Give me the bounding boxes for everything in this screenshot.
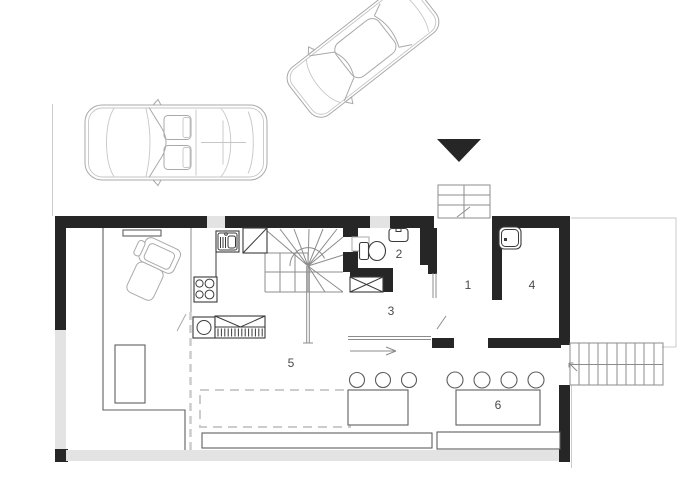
car-windshield bbox=[309, 40, 365, 101]
bar-stool bbox=[350, 373, 365, 388]
bench-right bbox=[437, 432, 560, 449]
car-rear-window bbox=[371, 4, 412, 52]
wall-top-a bbox=[58, 216, 207, 228]
car-mirror-left bbox=[305, 45, 315, 55]
toilet-bowl bbox=[369, 242, 386, 261]
stair-winder-lines bbox=[266, 229, 343, 292]
room4-washbasin bbox=[499, 227, 521, 249]
bench-left bbox=[202, 433, 432, 448]
door-frame-lines bbox=[433, 273, 436, 298]
kitchen-sink bbox=[216, 231, 239, 252]
car-hood-line bbox=[107, 109, 115, 177]
exterior-stairs-treads bbox=[570, 343, 663, 385]
car-seat-left bbox=[164, 116, 191, 140]
exterior-stairs bbox=[569, 343, 663, 385]
car-mirror-bottom bbox=[153, 180, 161, 186]
room-label-2: 2 bbox=[396, 247, 403, 261]
wall-right-upper bbox=[559, 216, 570, 345]
car-windshield-base bbox=[146, 109, 150, 177]
entrance-steps bbox=[438, 185, 490, 218]
wall-corridor-a bbox=[432, 338, 454, 348]
washbasin-outline bbox=[389, 229, 408, 242]
kitchen-corner-cabinet bbox=[243, 228, 267, 253]
toilet bbox=[360, 242, 386, 261]
car-hood-line bbox=[300, 59, 340, 108]
direction-line-double bbox=[348, 337, 431, 340]
car-seat-right-back bbox=[183, 148, 190, 168]
shaft-box bbox=[350, 277, 383, 292]
wall-wc-right bbox=[420, 228, 437, 265]
car-trunk-line bbox=[248, 112, 253, 174]
entrance-marker-triangle bbox=[437, 139, 481, 162]
floor-plan-page: 1 2 3 4 5 6 bbox=[0, 0, 680, 504]
oven-unit bbox=[193, 317, 215, 338]
bar-stool bbox=[447, 372, 463, 388]
wall-wc-pier bbox=[383, 270, 393, 292]
car-deck-cross-lines bbox=[201, 121, 246, 165]
room-label-5: 5 bbox=[288, 356, 295, 370]
toilet-tank bbox=[360, 243, 369, 260]
floor-plan-canvas: 1 2 3 4 5 6 bbox=[0, 0, 680, 504]
window-top-2 bbox=[370, 216, 390, 228]
window-top-1 bbox=[207, 216, 225, 228]
glazing-south bbox=[66, 450, 570, 461]
room-label-3: 3 bbox=[388, 304, 395, 318]
window-left bbox=[55, 330, 66, 449]
room-label-1: 1 bbox=[465, 278, 472, 292]
counter-island-left bbox=[348, 390, 408, 425]
car-mirror-right bbox=[345, 97, 355, 107]
wall-corridor-b bbox=[488, 338, 561, 348]
terrace-outline bbox=[571, 218, 676, 347]
car-mirror-top bbox=[153, 100, 161, 106]
wall-top-c bbox=[390, 216, 434, 228]
car-roof bbox=[331, 15, 399, 81]
dashed-table-zone bbox=[200, 390, 350, 427]
bar-stool bbox=[528, 372, 544, 388]
bar-stool bbox=[402, 373, 417, 388]
car-body-inner bbox=[285, 0, 440, 119]
car-windshield bbox=[149, 108, 166, 178]
bar-stool bbox=[501, 372, 517, 388]
door-swing-mark bbox=[437, 316, 446, 329]
car-seat-left-back bbox=[183, 118, 190, 138]
living-area bbox=[103, 228, 191, 450]
wall-right-lower bbox=[559, 385, 570, 462]
cooktop bbox=[194, 277, 217, 302]
room-label-4: 4 bbox=[529, 278, 536, 292]
car-body bbox=[281, 0, 444, 123]
car-convertible bbox=[85, 100, 267, 186]
bar-stool bbox=[474, 372, 490, 388]
basin-outline bbox=[499, 227, 521, 249]
wc-washbasin bbox=[389, 229, 408, 242]
car-trunk-line bbox=[397, 0, 433, 32]
dining-terrace bbox=[200, 372, 560, 449]
basin-drain bbox=[504, 238, 507, 241]
armchair bbox=[118, 233, 183, 305]
bar-stool bbox=[376, 373, 391, 388]
swing-mark bbox=[177, 314, 186, 331]
wall-wc-right-stub bbox=[428, 265, 437, 274]
entrance-steps-treads bbox=[438, 185, 490, 218]
direction-arrow bbox=[350, 347, 396, 355]
wall-shelf bbox=[123, 230, 161, 236]
car-seat-right bbox=[164, 146, 191, 170]
wall-top-d bbox=[492, 216, 570, 228]
car-sedan bbox=[278, 0, 448, 128]
room-label-6: 6 bbox=[495, 398, 502, 412]
wall-left bbox=[55, 216, 66, 330]
circulation-arrows bbox=[348, 316, 446, 355]
lower-cabinet-unit bbox=[215, 316, 265, 338]
coffee-table bbox=[115, 345, 145, 403]
